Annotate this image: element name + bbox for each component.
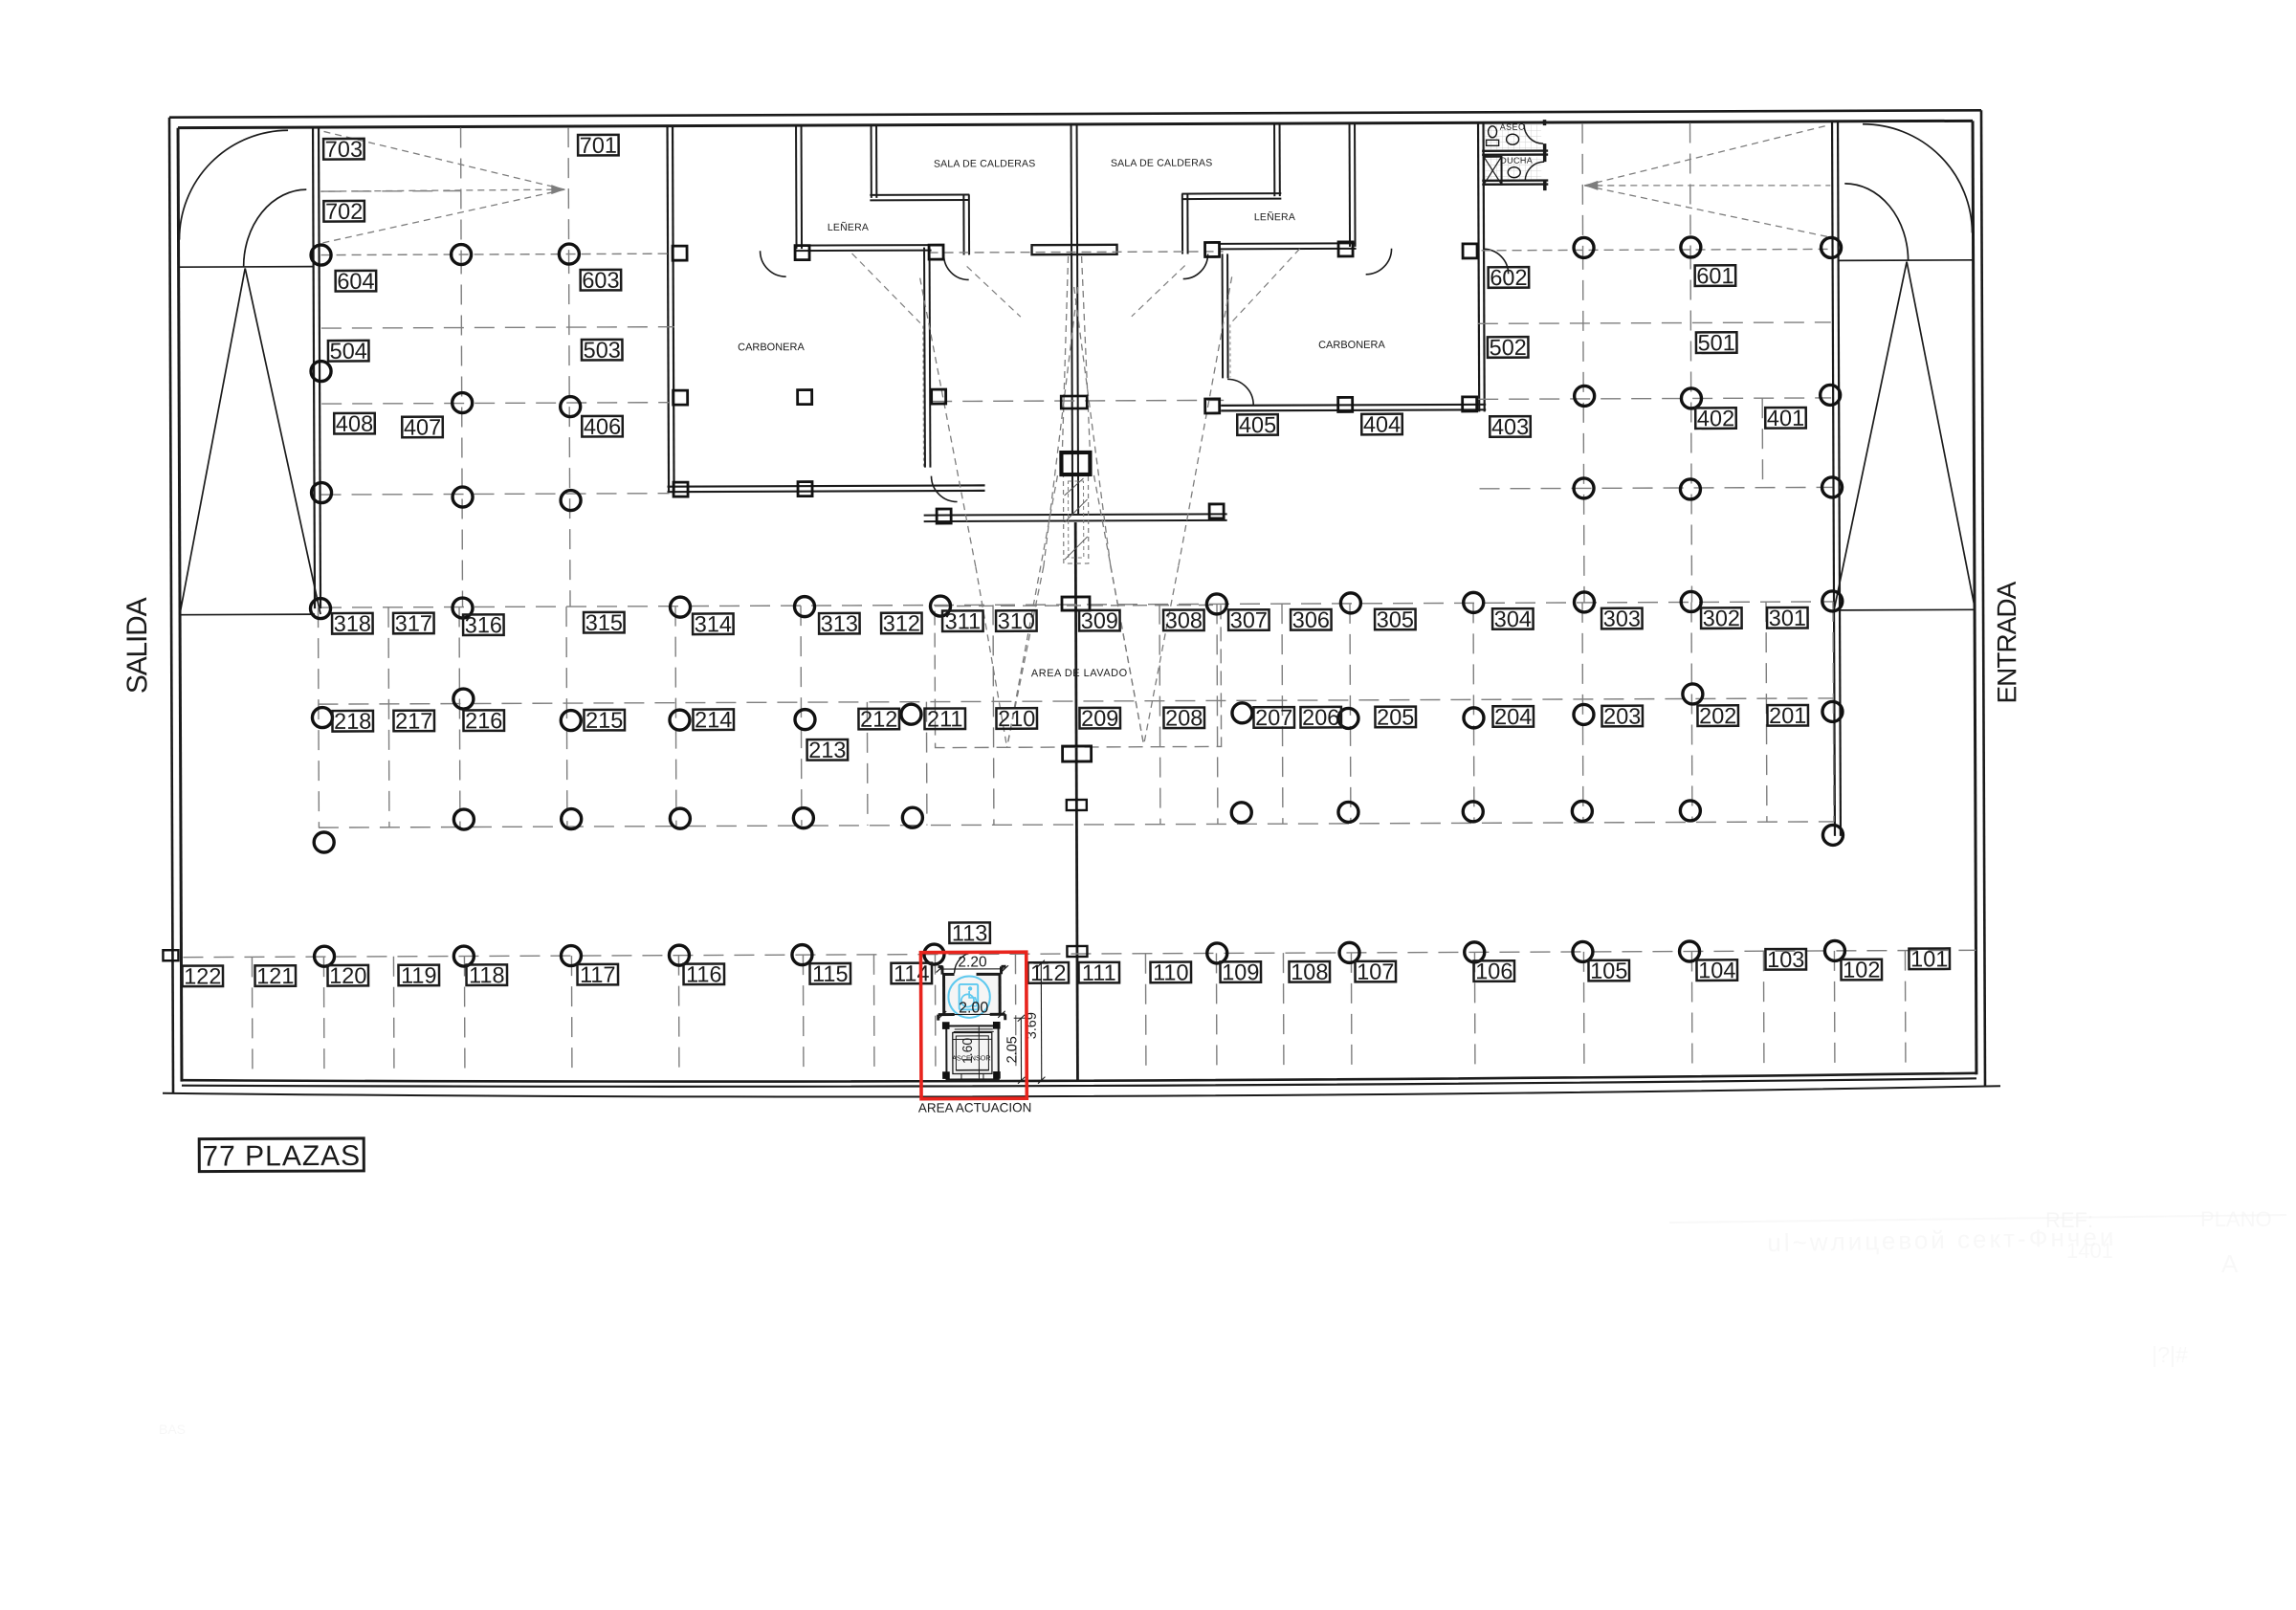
svg-text:408: 408	[336, 411, 373, 436]
svg-text:318: 318	[334, 611, 371, 636]
svg-text:202: 202	[1699, 703, 1736, 728]
svg-text:122: 122	[184, 963, 221, 988]
svg-text:104: 104	[1698, 958, 1735, 982]
svg-text:601: 601	[1696, 263, 1733, 288]
svg-text:204: 204	[1494, 704, 1532, 729]
svg-text:210: 210	[998, 706, 1035, 731]
svg-text:603: 603	[582, 268, 619, 293]
svg-text:106: 106	[1475, 959, 1512, 983]
svg-text:DUCHA: DUCHA	[1500, 156, 1533, 165]
svg-text:BAS: BAS	[159, 1422, 186, 1437]
svg-text:ASEO: ASEO	[1500, 122, 1526, 132]
svg-text:301: 301	[1769, 606, 1806, 630]
svg-text:A: A	[2221, 1249, 2239, 1278]
svg-text:206: 206	[1302, 705, 1339, 730]
svg-text:312: 312	[883, 611, 920, 636]
svg-text:703: 703	[325, 137, 363, 162]
svg-text:1401: 1401	[2066, 1239, 2113, 1263]
svg-text:307: 307	[1230, 607, 1268, 632]
svg-text:113: 113	[952, 920, 988, 945]
svg-text:107: 107	[1357, 959, 1394, 984]
svg-text:1.60: 1.60	[960, 1038, 975, 1065]
svg-text:302: 302	[1703, 606, 1740, 630]
svg-text:407: 407	[404, 414, 441, 439]
svg-text:602: 602	[1490, 265, 1527, 290]
svg-text:317: 317	[395, 611, 432, 636]
svg-text:216: 216	[465, 708, 502, 733]
svg-text:211: 211	[927, 706, 963, 731]
svg-text:303: 303	[1603, 607, 1641, 631]
svg-text:LEÑERA: LEÑERA	[828, 221, 869, 233]
svg-text:77 PLAZAS: 77 PLAZAS	[202, 1140, 361, 1173]
svg-text:2.20: 2.20	[958, 954, 987, 970]
svg-text:PLANO: PLANO	[2200, 1207, 2272, 1231]
svg-text:117: 117	[580, 962, 616, 987]
svg-text:305: 305	[1377, 607, 1414, 631]
svg-text:111: 111	[1082, 960, 1116, 985]
svg-text:109: 109	[1222, 959, 1259, 984]
svg-text:114: 114	[894, 960, 930, 985]
svg-text:205: 205	[1377, 704, 1414, 729]
svg-text:405: 405	[1239, 412, 1276, 437]
svg-text:208: 208	[1165, 705, 1203, 730]
svg-text:212: 212	[860, 707, 897, 732]
svg-text:103: 103	[1767, 947, 1804, 972]
svg-text:604: 604	[337, 269, 374, 294]
svg-text:201: 201	[1769, 703, 1806, 728]
svg-text:110: 110	[1153, 959, 1189, 984]
svg-text:102: 102	[1843, 958, 1880, 982]
svg-text:CARBONERA: CARBONERA	[738, 342, 805, 353]
svg-text:SALIDA: SALIDA	[121, 597, 153, 694]
svg-text:310: 310	[998, 608, 1035, 633]
svg-text:AREA DE LAVADO: AREA DE LAVADO	[1031, 668, 1128, 679]
svg-text:403: 403	[1491, 414, 1529, 439]
svg-text:316: 316	[465, 612, 502, 637]
svg-text:209: 209	[1081, 706, 1118, 731]
svg-text:REF:: REF:	[2045, 1208, 2093, 1232]
svg-text:119: 119	[401, 962, 437, 987]
svg-text:218: 218	[334, 709, 371, 734]
svg-text:115: 115	[812, 961, 849, 986]
svg-text:207: 207	[1255, 705, 1292, 730]
svg-text:309: 309	[1081, 608, 1118, 633]
svg-text:504: 504	[330, 339, 367, 364]
svg-text:108: 108	[1291, 959, 1328, 984]
svg-text:121: 121	[256, 963, 294, 988]
svg-text:503: 503	[584, 338, 621, 363]
svg-text:120: 120	[329, 963, 366, 988]
svg-text:702: 702	[325, 199, 363, 224]
svg-text:116: 116	[686, 961, 722, 986]
svg-text:308: 308	[1165, 607, 1203, 632]
svg-text:217: 217	[395, 709, 432, 734]
svg-text:105: 105	[1590, 959, 1627, 983]
svg-text:311: 311	[945, 608, 982, 633]
svg-text:313: 313	[821, 611, 858, 636]
svg-text:2.05: 2.05	[1004, 1036, 1020, 1063]
svg-text:406: 406	[584, 414, 621, 439]
svg-text:404: 404	[1363, 412, 1401, 437]
svg-text:SALA DE CALDERAS: SALA DE CALDERAS	[934, 158, 1036, 169]
svg-text:502: 502	[1490, 335, 1527, 360]
svg-text:101: 101	[1910, 946, 1948, 971]
svg-text:SALA DE CALDERAS: SALA DE CALDERAS	[1111, 157, 1213, 168]
svg-text:AREA ACTUACION: AREA ACTUACION	[918, 1100, 1032, 1114]
svg-text:LEÑERA: LEÑERA	[1254, 210, 1295, 223]
svg-text:306: 306	[1292, 607, 1330, 632]
svg-text:701: 701	[580, 133, 617, 158]
svg-text:304: 304	[1494, 607, 1532, 631]
svg-text:314: 314	[695, 611, 732, 636]
svg-text:112: 112	[1030, 960, 1067, 985]
svg-text:215: 215	[585, 708, 623, 733]
svg-text:|?|#: |?|#	[2152, 1342, 2188, 1367]
svg-text:315: 315	[585, 610, 623, 635]
svg-text:401: 401	[1767, 406, 1804, 430]
svg-text:ENTRADA: ENTRADA	[1992, 581, 2022, 703]
svg-text:213: 213	[808, 738, 846, 762]
svg-text:203: 203	[1603, 704, 1641, 729]
svg-text:118: 118	[469, 962, 505, 987]
svg-text:214: 214	[695, 707, 732, 732]
svg-text:402: 402	[1697, 406, 1734, 430]
svg-text:501: 501	[1698, 330, 1735, 355]
svg-text:CARBONERA: CARBONERA	[1318, 340, 1385, 351]
